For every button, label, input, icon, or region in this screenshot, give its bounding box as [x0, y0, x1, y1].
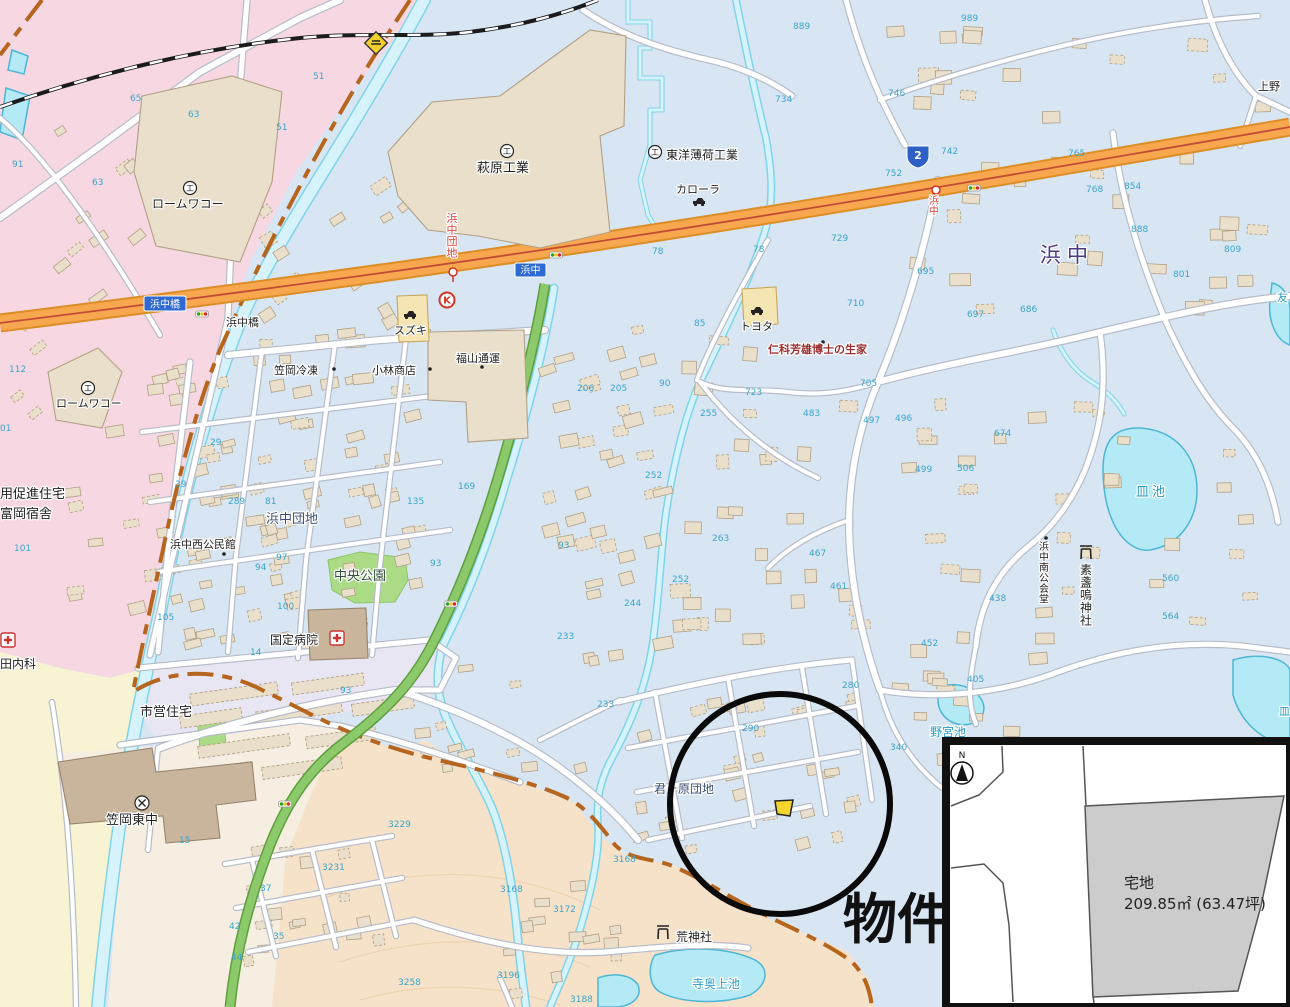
building — [926, 534, 946, 544]
parcel-number: 263 — [712, 534, 729, 544]
svg-text:2: 2 — [914, 149, 922, 162]
building — [670, 583, 691, 598]
svg-text:浜中橋: 浜中橋 — [150, 298, 180, 311]
dot-icon — [222, 552, 226, 556]
building — [618, 571, 634, 586]
parcel-number: 496 — [895, 414, 912, 424]
parcel-number: 90 — [659, 379, 671, 389]
parcel-number: 801 — [1173, 270, 1190, 280]
building — [608, 649, 623, 661]
building — [570, 880, 586, 891]
map-label: スズキ — [394, 323, 427, 337]
building — [964, 484, 978, 493]
building — [1210, 277, 1227, 288]
building — [961, 569, 980, 582]
parcel-number: 205 — [610, 384, 627, 394]
building — [1243, 592, 1258, 600]
building — [577, 436, 595, 449]
building — [293, 385, 312, 398]
parcel-number: 467 — [809, 549, 826, 559]
hospital-icon — [330, 631, 344, 645]
building — [1042, 111, 1060, 123]
building — [63, 487, 81, 498]
building — [618, 550, 636, 564]
map-label: 浜中 — [1040, 243, 1094, 267]
parcel-number: 206 — [577, 384, 594, 394]
building — [1220, 217, 1239, 231]
map-label: 福山通運 — [456, 351, 500, 365]
building — [1076, 235, 1090, 243]
building — [553, 400, 571, 413]
building — [752, 752, 763, 762]
map-label: 寺奥上池 — [692, 977, 740, 991]
parcel-number: 51 — [276, 123, 287, 133]
parcel-number: 101 — [14, 544, 31, 554]
parcel-number: 989 — [961, 14, 978, 24]
building — [824, 768, 839, 777]
parcel-number: 169 — [458, 482, 475, 492]
building — [521, 761, 538, 772]
building — [604, 937, 619, 949]
building — [88, 538, 103, 547]
map-label: 小林商店 — [372, 363, 416, 377]
building — [269, 379, 285, 392]
building — [270, 574, 283, 586]
dot-icon — [480, 365, 484, 369]
building-fukuyama-depot — [428, 330, 528, 442]
map-canvas[interactable]: 工工工工K2浜中橋浜中51516563639111201101293928981… — [0, 0, 1290, 1007]
building — [917, 428, 932, 441]
building — [590, 525, 607, 539]
road — [802, 668, 826, 814]
building — [67, 586, 84, 596]
building — [458, 664, 473, 672]
property-flag-marker[interactable] — [775, 800, 793, 816]
building-hagiwara-kogyo — [388, 30, 626, 248]
dot-icon — [1044, 536, 1048, 540]
map-label: 萩原工業 — [477, 160, 529, 176]
bus-icon — [449, 268, 457, 282]
parcel-number: 752 — [885, 169, 902, 179]
building — [1074, 402, 1093, 413]
map-label: 笠岡冷凍 — [274, 363, 318, 377]
building — [617, 404, 631, 416]
svg-text:工: 工 — [503, 147, 511, 156]
map-label: 君ヶ原団地 — [654, 782, 714, 796]
building — [574, 762, 588, 774]
parcel-number: 100 — [277, 602, 294, 612]
building — [340, 893, 350, 902]
building — [535, 898, 550, 907]
building — [716, 455, 729, 470]
map-screenshot: 工工工工K2浜中橋浜中51516563639111201101293928981… — [0, 0, 1290, 1007]
building — [276, 528, 288, 540]
building — [743, 347, 758, 362]
factory-icon: 工 — [82, 382, 95, 395]
building — [345, 447, 358, 458]
building — [600, 449, 614, 460]
signal-icon — [445, 601, 458, 607]
parcel-number: 97 — [276, 553, 287, 563]
building — [1247, 225, 1268, 235]
building — [685, 522, 702, 534]
building — [755, 548, 767, 560]
parcel-number: 81 — [265, 497, 276, 507]
building — [1028, 412, 1046, 424]
building — [610, 925, 622, 934]
building — [914, 96, 932, 109]
building — [149, 473, 163, 483]
parcel-number: 3229 — [388, 820, 411, 830]
building — [1110, 55, 1125, 65]
shield2-icon: 2 — [907, 146, 929, 168]
building — [292, 918, 305, 926]
parcel-number: 705 — [860, 379, 877, 389]
building — [585, 578, 603, 589]
layer-inset: N宅地209.85㎡ (63.47坪) — [946, 741, 1290, 1007]
building — [957, 632, 970, 644]
building — [1118, 436, 1131, 445]
building — [734, 439, 749, 452]
map-label: 東洋薄荷工業 — [666, 147, 738, 162]
building — [363, 484, 376, 497]
parcel-number: 3196 — [497, 971, 520, 981]
building — [685, 844, 697, 854]
map-label-vertical: 浜中団地 — [447, 212, 458, 260]
parcel-number: 15 — [179, 836, 190, 846]
building — [1213, 74, 1225, 83]
parcel-number: 3188 — [570, 995, 593, 1005]
building — [831, 830, 843, 843]
building — [715, 609, 730, 621]
svg-text:K: K — [443, 296, 452, 307]
building — [636, 801, 648, 814]
building — [839, 400, 858, 412]
building — [329, 212, 345, 226]
parcel-number: 289 — [228, 497, 245, 507]
building — [1036, 607, 1053, 618]
parcel-number: 252 — [672, 575, 689, 585]
map-label: 荒神社 — [676, 929, 712, 944]
region-hill-beige — [272, 728, 875, 1007]
map-label-vertical: 素盞嗚神社 — [1080, 563, 1092, 627]
parcel-number: 94 — [255, 563, 267, 573]
parcel-number: 78 — [753, 245, 765, 255]
building — [258, 455, 272, 465]
building — [682, 618, 701, 629]
parcel-number: 63 — [92, 178, 103, 188]
map-label: 皿池 — [1136, 485, 1168, 500]
parcel-number: 01 — [0, 424, 11, 434]
parcel-number: 51 — [313, 72, 324, 82]
building — [506, 748, 520, 758]
parcel-number: 483 — [803, 409, 820, 419]
parcel-number: 14 — [250, 648, 262, 658]
svg-text:工: 工 — [186, 184, 194, 193]
building — [559, 433, 579, 448]
map-label: ロームワコー — [152, 197, 224, 211]
parcel-number: 3172 — [553, 905, 576, 915]
building — [962, 193, 980, 204]
svg-text:工: 工 — [651, 148, 659, 157]
parcel-number: 746 — [888, 89, 905, 99]
building — [620, 367, 639, 380]
building — [344, 516, 361, 528]
parcel-number: 37 — [260, 884, 271, 894]
parcel-number: 765 — [1068, 149, 1085, 159]
building — [394, 553, 411, 567]
inset-landuse-label: 宅地 — [1124, 874, 1154, 892]
building — [1057, 532, 1071, 543]
building — [184, 627, 197, 640]
parcel-number: 233 — [597, 700, 614, 710]
parcel-number: 674 — [994, 429, 1011, 439]
building — [575, 487, 591, 500]
building — [1238, 514, 1253, 524]
parcel-number: 3168 — [613, 855, 636, 865]
signal-icon — [550, 252, 563, 258]
property-label: 物件 — [843, 888, 951, 951]
building — [1222, 230, 1236, 241]
map-label-vertical: 浜中 — [929, 195, 939, 218]
map-label: 上野 — [1258, 80, 1280, 93]
building — [631, 325, 643, 335]
parcel-number: 497 — [863, 416, 880, 426]
parcel-number: 854 — [1124, 182, 1141, 192]
building — [199, 580, 212, 589]
factory-icon: 工 — [501, 145, 514, 158]
building — [682, 361, 697, 374]
parcel-number: 3258 — [398, 978, 421, 988]
building — [147, 383, 163, 395]
building — [787, 513, 804, 524]
parcel-number: 452 — [921, 639, 938, 649]
building — [935, 398, 947, 410]
parcel-number: 809 — [1224, 245, 1241, 255]
building — [743, 634, 761, 645]
parcel-number: 233 — [557, 632, 574, 642]
building — [207, 453, 221, 463]
pond-teraoku-kamiike — [650, 949, 765, 1002]
building — [791, 595, 805, 609]
building — [653, 404, 673, 416]
map-label: 富岡宿舎 — [0, 506, 52, 522]
building — [352, 372, 373, 384]
building — [1028, 652, 1047, 665]
building — [1062, 587, 1074, 595]
parcel-number: 244 — [624, 599, 641, 609]
building — [404, 409, 422, 423]
parcel-number: 85 — [694, 319, 705, 329]
building — [586, 589, 601, 600]
building — [370, 176, 392, 196]
road — [880, 690, 942, 788]
building — [542, 491, 555, 505]
building — [940, 31, 957, 43]
map-label: 皿 — [1279, 705, 1290, 718]
parcel-number: 112 — [9, 365, 26, 375]
parcel-number: 93 — [340, 686, 351, 696]
building — [690, 704, 707, 717]
parcel-number: 3168 — [500, 885, 523, 895]
building — [1223, 449, 1235, 456]
parcel-number: 405 — [967, 675, 984, 685]
map-label-vertical: 浜中南公会堂 — [1039, 541, 1049, 606]
building — [409, 578, 423, 590]
parcel-number: 3231 — [322, 863, 345, 873]
building — [369, 495, 382, 509]
signal-icon — [279, 801, 292, 807]
parcel-number: 560 — [1162, 574, 1179, 584]
building — [844, 801, 856, 813]
building — [1003, 68, 1021, 81]
parcel-number: 697 — [967, 310, 984, 320]
building — [542, 523, 560, 539]
inset-north-label: N — [959, 751, 966, 761]
kmark-icon: K — [440, 293, 455, 308]
parcel-number: 78 — [652, 247, 664, 257]
building — [222, 439, 236, 448]
building — [1189, 617, 1205, 626]
parcel-number: 42 — [229, 922, 240, 932]
parcel-number: 742 — [941, 147, 958, 157]
parcel-number: 729 — [831, 234, 848, 244]
parcel-number: 91 — [12, 160, 23, 170]
building — [637, 450, 654, 461]
building — [243, 955, 254, 967]
map-label: 浜中西公民館 — [170, 537, 236, 551]
parcel-number: 506 — [957, 464, 974, 474]
building — [795, 837, 811, 851]
building — [1238, 275, 1253, 286]
building — [341, 588, 355, 597]
building — [338, 848, 351, 859]
map-label: 野宮池 — [930, 724, 966, 739]
building — [887, 26, 905, 37]
building — [373, 934, 385, 946]
building — [728, 506, 742, 515]
factory-icon: 工 — [649, 146, 662, 159]
building — [1036, 633, 1055, 644]
building — [1229, 549, 1244, 558]
building — [805, 569, 817, 583]
building — [279, 355, 291, 364]
building — [247, 608, 262, 622]
building — [941, 564, 960, 575]
building — [639, 354, 656, 368]
car-icon — [693, 198, 705, 206]
dot-icon — [332, 367, 336, 371]
pond-edge-pond-b — [1233, 656, 1290, 745]
map-label: トヨタ — [740, 320, 773, 333]
parcel-number: 723 — [745, 388, 762, 398]
building — [521, 920, 534, 933]
map-label: 用促進住宅 — [0, 487, 65, 502]
building — [963, 30, 982, 44]
building — [551, 971, 563, 983]
dot-icon — [428, 367, 432, 371]
parcel-number: 888 — [1131, 225, 1148, 235]
building — [1165, 538, 1180, 550]
parcel-number: 290 — [742, 724, 759, 734]
parcel-number: 135 — [407, 497, 424, 507]
map-label: 国定病院 — [270, 632, 318, 647]
building — [743, 409, 756, 417]
parcel-number: 252 — [645, 471, 662, 481]
building — [348, 487, 363, 497]
building — [1090, 170, 1104, 179]
building — [435, 721, 447, 730]
parcel-number: 255 — [700, 409, 717, 419]
building — [607, 346, 626, 362]
map-label: ロームワコー — [56, 397, 122, 410]
svg-text:工: 工 — [84, 384, 92, 393]
building — [588, 655, 599, 666]
svg-text:浜中: 浜中 — [521, 264, 541, 277]
hospital-icon — [1, 633, 15, 647]
building — [189, 598, 205, 612]
building — [707, 697, 722, 709]
map-label: 笠岡東中 — [106, 812, 158, 828]
building — [337, 328, 356, 339]
building — [171, 594, 183, 605]
signal-icon — [968, 185, 981, 191]
factory-icon: 工 — [184, 182, 197, 195]
road — [878, 296, 1290, 382]
map-label: 仁科芳雄博士の生家 — [768, 342, 868, 356]
parcel-number: 768 — [1086, 185, 1103, 195]
building — [950, 274, 971, 286]
building — [415, 728, 431, 739]
parcel-number: 438 — [989, 594, 1006, 604]
road-badge: 浜中 — [515, 263, 546, 277]
parcel-number: 686 — [1020, 305, 1037, 315]
building — [1217, 483, 1231, 493]
building — [380, 212, 393, 224]
building — [766, 571, 781, 584]
building — [105, 425, 124, 439]
building — [932, 678, 947, 686]
parcel-number: 710 — [847, 299, 864, 309]
parcel-number: 105 — [157, 613, 174, 623]
building — [346, 430, 365, 443]
parcel-number: 65 — [130, 94, 141, 104]
building — [1003, 726, 1020, 736]
building — [258, 306, 276, 323]
building — [509, 680, 521, 688]
map-label: 浜中団地 — [266, 512, 318, 527]
parcel-number: 499 — [915, 465, 932, 475]
building — [565, 512, 586, 527]
parcel-number: 93 — [430, 559, 441, 569]
parcel-number: 29 — [210, 438, 222, 448]
parcel-number: 889 — [793, 22, 810, 32]
parcel-number: 564 — [1162, 612, 1179, 622]
building — [1188, 38, 1208, 52]
building — [683, 598, 701, 610]
building — [554, 353, 575, 365]
map-label: 市営住宅 — [140, 704, 192, 720]
pond-teraoku-small — [598, 975, 639, 1007]
parcel-number: 63 — [188, 110, 199, 120]
map-label: 田内科 — [0, 657, 36, 671]
building — [960, 90, 976, 100]
road-badge: 浜中橋 — [144, 296, 186, 311]
building — [797, 447, 811, 462]
parcel-number: 35 — [273, 932, 284, 942]
parcel-number: 461 — [830, 582, 847, 592]
map-label: 友 — [1277, 290, 1288, 304]
